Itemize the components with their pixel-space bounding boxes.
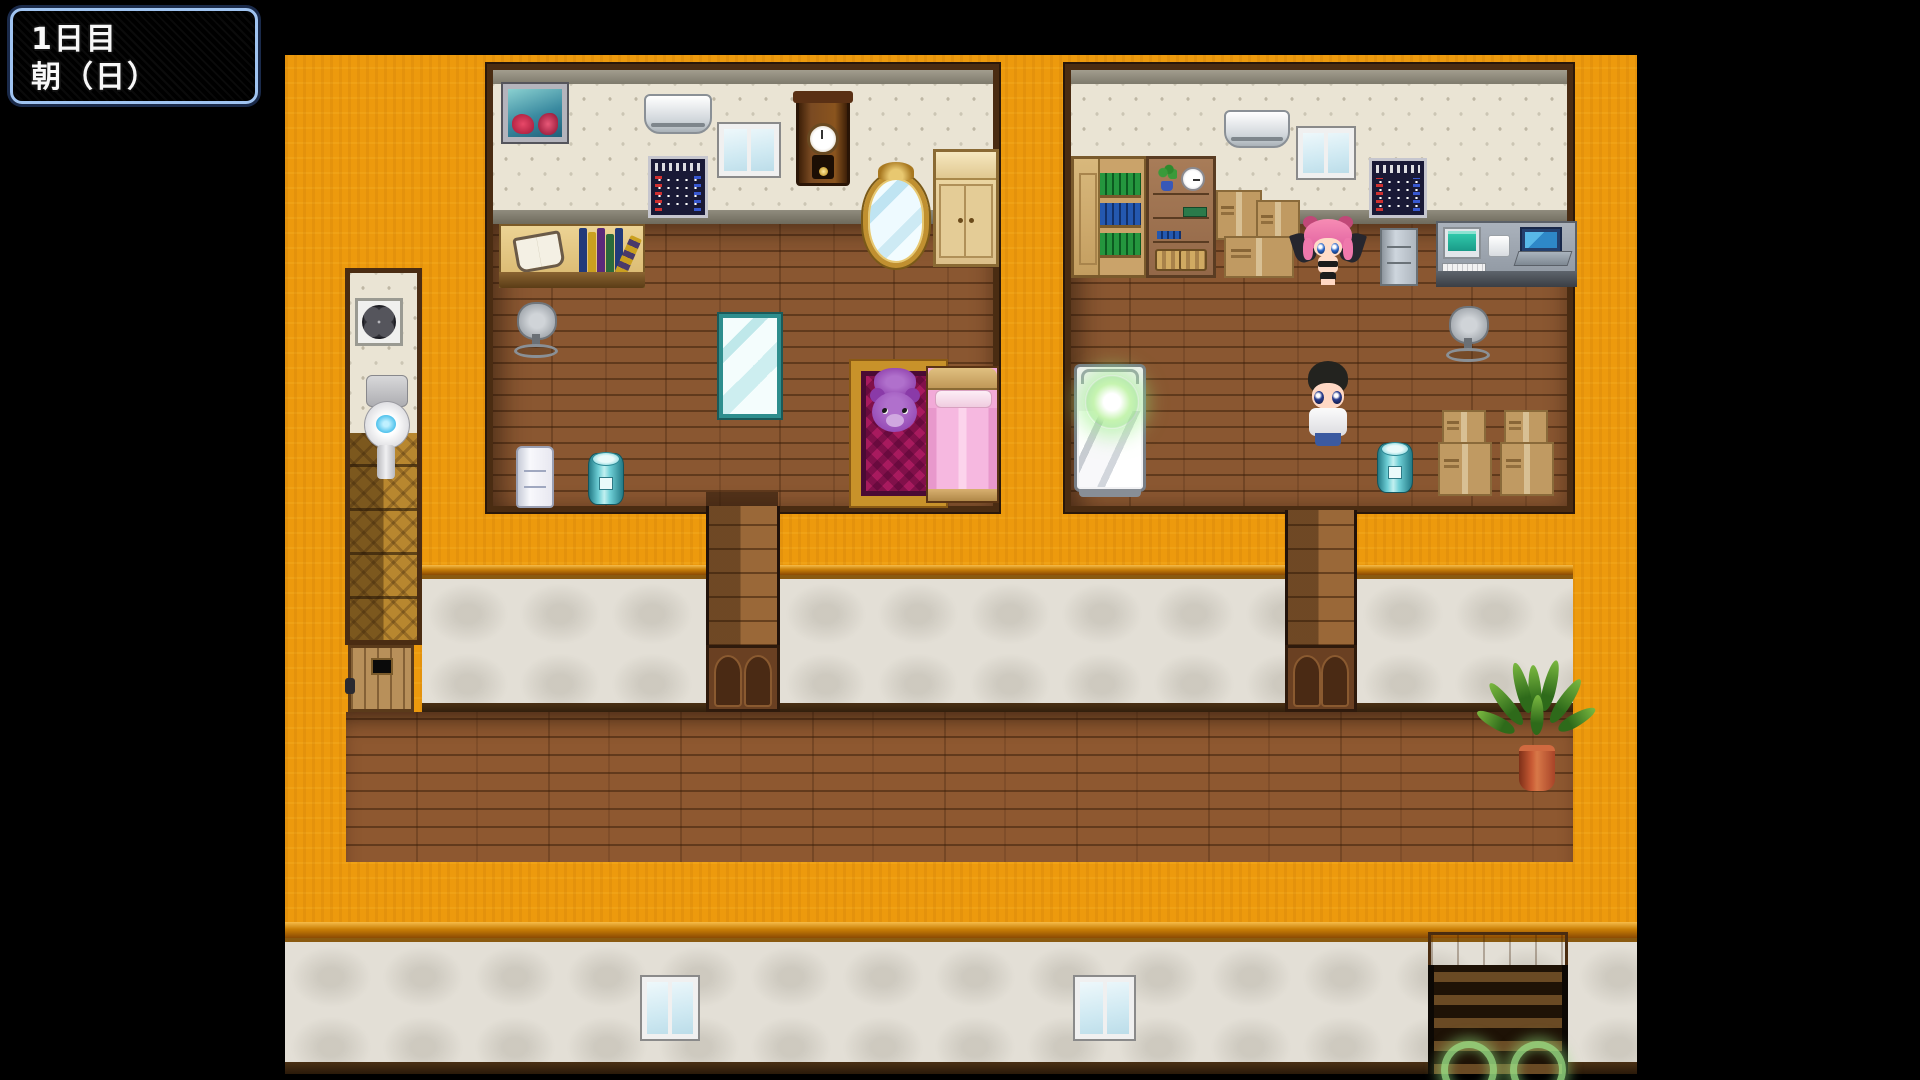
left-bedroom-door[interactable]: [706, 645, 780, 712]
wall-top-stone: [493, 70, 993, 84]
window: [1298, 128, 1354, 178]
calendar-saturday-column: [694, 176, 701, 211]
time-hud: 1日目 朝（日）: [10, 8, 258, 104]
blue-books: [1157, 231, 1181, 239]
computer-desk[interactable]: [1436, 221, 1577, 287]
teal-drum: [1377, 443, 1413, 493]
aquarium-painting: [503, 84, 567, 142]
ventilation-fan: [355, 298, 403, 346]
ornate-mirror: [863, 173, 929, 268]
open-book: [512, 230, 566, 274]
keyboard: [1442, 263, 1486, 274]
demon-girl-character[interactable]: [1301, 216, 1355, 285]
cabinet-bookshelf: [1071, 156, 1147, 278]
round-clock: [1181, 167, 1205, 191]
air-conditioner: [644, 94, 712, 134]
filing-cabinet: [1380, 228, 1418, 286]
mini-plant: [1157, 165, 1177, 191]
wall-top-stone: [1071, 70, 1567, 84]
teddy-bear[interactable]: [864, 368, 926, 436]
right-bedroom: [1065, 64, 1573, 512]
office-chair: [1446, 306, 1490, 364]
cardboard-box-pile: [1216, 190, 1300, 278]
small-window: [642, 977, 698, 1039]
monitor: [1443, 227, 1481, 259]
window: [719, 124, 779, 176]
teal-drum: [588, 453, 624, 505]
hallway-wall: [780, 575, 1285, 715]
hud-time-label: 朝（日）: [31, 59, 237, 97]
office-chair: [514, 302, 558, 360]
floor-mirror[interactable]: [719, 314, 781, 418]
air-conditioner: [1224, 110, 1290, 148]
pc-box: [1488, 235, 1510, 257]
game-screen: 1日目 朝（日）: [0, 0, 1920, 1080]
laptop: [1516, 227, 1570, 267]
hallway-wall: [422, 575, 706, 715]
calendar[interactable]: [1369, 158, 1427, 218]
small-window: [1075, 977, 1134, 1039]
bed-with-glow-orb[interactable]: [1074, 364, 1146, 492]
green-book: [1183, 207, 1207, 217]
save-glow-orb[interactable]: [1085, 375, 1139, 429]
stair-hatch[interactable]: [1428, 965, 1568, 1074]
wardrobe: [933, 149, 999, 267]
calendar-sunday-column: [655, 176, 662, 211]
potted-plant: [1502, 655, 1572, 791]
left-bedroom: [487, 64, 999, 512]
doorway-shadow: [706, 492, 778, 506]
book-stack: [579, 228, 637, 272]
toilet[interactable]: [364, 375, 408, 483]
stair-header-beam: [1428, 932, 1568, 968]
map-area: [285, 55, 1637, 1074]
wicker-basket: [1179, 249, 1207, 271]
boy-character[interactable]: [1306, 361, 1350, 449]
right-room-passage: [1285, 510, 1357, 646]
pink-bed[interactable]: [926, 366, 999, 503]
roof-eave: [422, 565, 1573, 575]
bathroom: [345, 268, 422, 645]
left-room-passage: [706, 506, 780, 646]
hallway-floor: [346, 712, 1573, 862]
calendar[interactable]: [648, 156, 708, 218]
shelf-unit: [1146, 156, 1216, 278]
right-bedroom-door[interactable]: [1285, 645, 1357, 712]
study-desk[interactable]: [499, 224, 645, 288]
glow-ring-right[interactable]: [1510, 1041, 1566, 1080]
letterbox-top: [0, 0, 1920, 55]
calendar-title: [655, 163, 701, 171]
bathroom-door[interactable]: [348, 645, 414, 712]
glow-ring-left[interactable]: [1441, 1041, 1497, 1080]
hud-day-label: 1日目: [31, 21, 237, 59]
white-cabinet: [516, 446, 554, 508]
box-stacks: [1438, 410, 1560, 498]
pendulum-wall-clock: [796, 94, 850, 186]
